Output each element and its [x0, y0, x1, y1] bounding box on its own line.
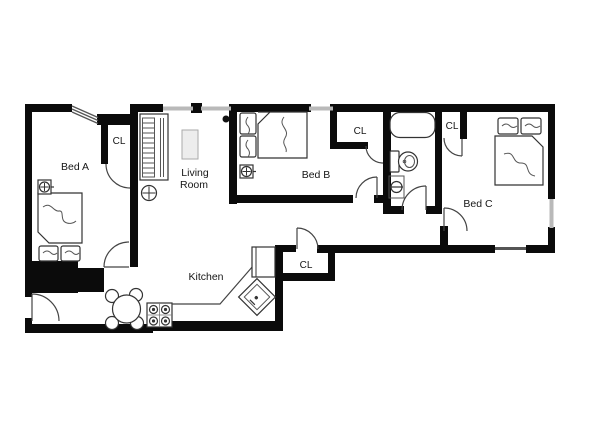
bed-icon [240, 112, 307, 158]
window-angled-bed-a [72, 106, 98, 124]
kitchen-sink-icon [239, 279, 276, 316]
floor-plan-canvas: Bed A CL Living Room Bed B CL Bed C CL K… [0, 0, 600, 423]
bathtub-icon [390, 113, 435, 138]
label-bed-a: Bed A [61, 161, 89, 173]
thermostat-icon [38, 180, 54, 194]
table-icon [182, 130, 198, 159]
window-bed-c-bottom [495, 247, 526, 250]
door-arc-entry [32, 294, 59, 321]
door-arc-kitchen-closet [297, 228, 318, 249]
floor-plan: Bed A CL Living Room Bed B CL Bed C CL K… [0, 0, 600, 423]
bed-icon [38, 193, 82, 261]
stove-icon [147, 303, 172, 327]
label-bed-c: Bed C [463, 198, 493, 210]
window-living-2 [201, 107, 231, 111]
refrigerator-icon [252, 247, 275, 277]
door-arc-bed-b [356, 177, 377, 198]
label-living-line1: Living [181, 167, 209, 179]
label-kitchen: Kitchen [188, 271, 223, 283]
door-arc-bed-c-closet [444, 138, 462, 156]
label-living-line2: Room [180, 179, 208, 191]
sink-icon [389, 176, 404, 198]
label-bed-b-closet: CL [354, 126, 367, 137]
thermostat-icon [240, 165, 256, 178]
radiator-icon [140, 114, 168, 180]
label-bed-a-closet: CL [113, 136, 126, 147]
label-bed-c-closet: CL [446, 121, 459, 132]
dining-table-icon [106, 289, 144, 330]
door-arc-bathroom [402, 186, 426, 210]
bed-icon [495, 118, 543, 185]
window-living-1 [163, 107, 193, 111]
door-arc-bed-b-closet [366, 146, 383, 163]
window-bed-c-right [550, 199, 554, 228]
thermostat-icon [142, 186, 157, 201]
label-kitchen-closet: CL [300, 260, 313, 271]
toilet-icon [390, 151, 418, 172]
door-arc-bed-a-closet [106, 164, 130, 188]
label-bed-b: Bed B [302, 169, 331, 181]
window-bed-b [309, 107, 333, 111]
door-arc-bed-a [104, 242, 129, 267]
ceiling-light-icon [223, 116, 230, 123]
